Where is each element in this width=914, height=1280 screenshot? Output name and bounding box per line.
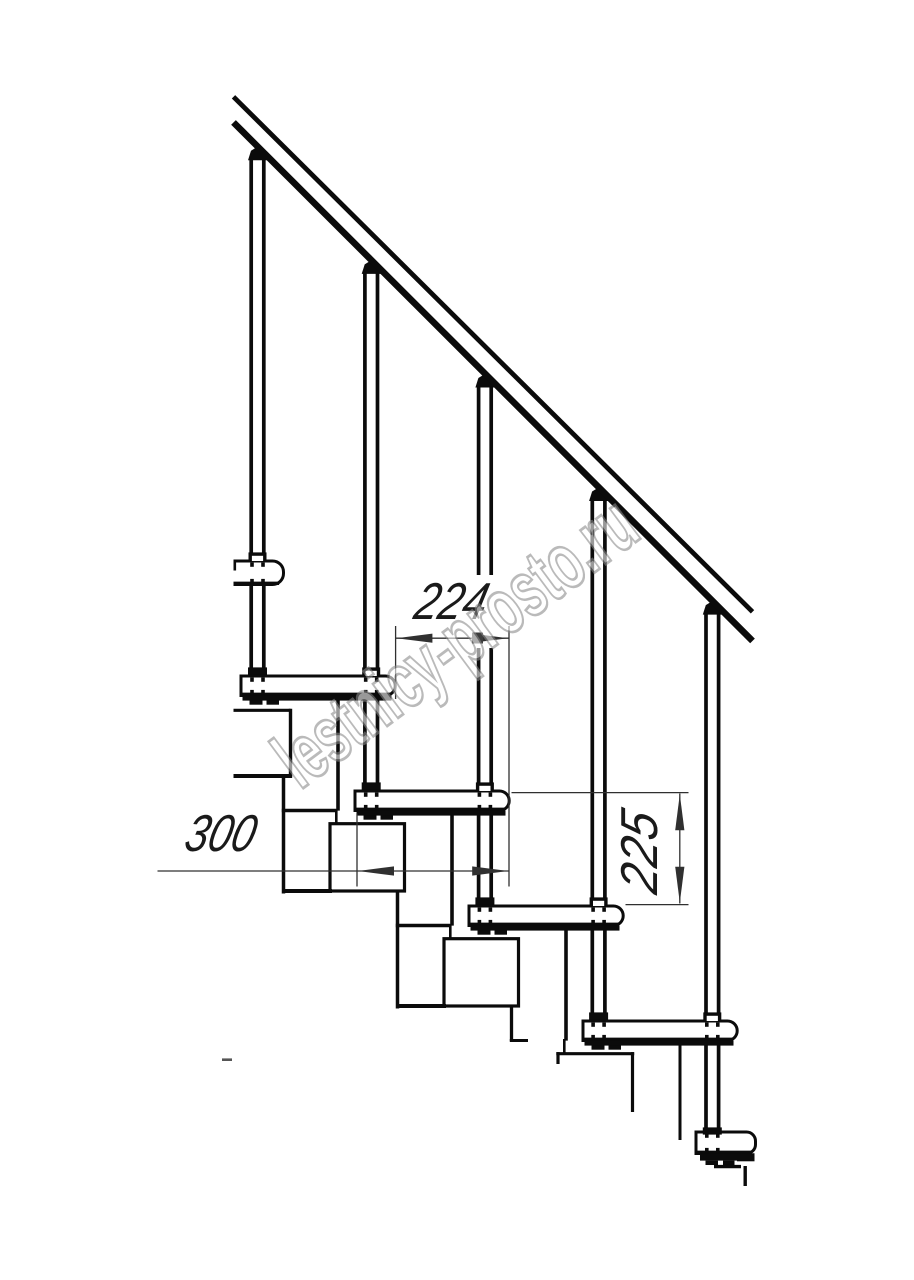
svg-text:225: 225	[611, 803, 669, 899]
svg-text:300: 300	[179, 805, 263, 863]
